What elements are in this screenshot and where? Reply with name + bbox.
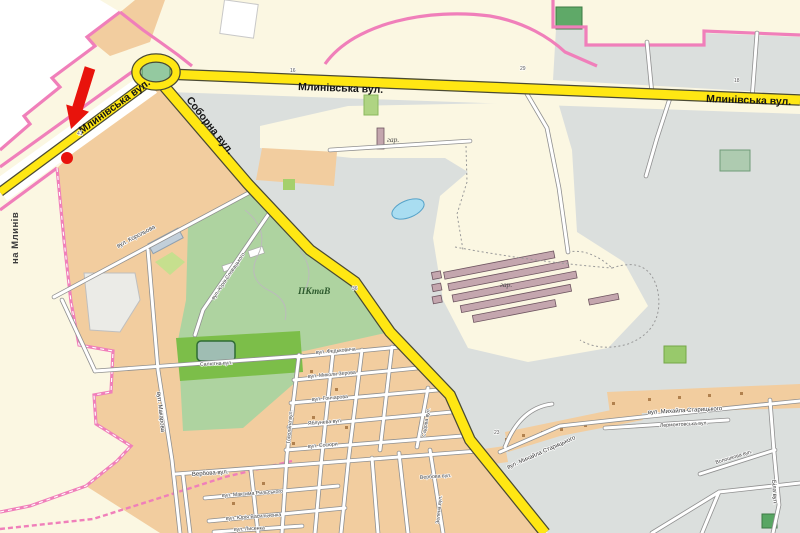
house-number: 16 [290, 68, 296, 74]
green-patch-north [364, 95, 378, 115]
garage-label-center: гар. [500, 280, 512, 289]
house-number: 41 [77, 131, 83, 137]
house-number: 23 [494, 430, 500, 436]
green-square-northeast [720, 150, 750, 171]
tan-block-northeast [256, 148, 337, 186]
house-number: 29 [520, 66, 526, 72]
house-number: 36 [352, 286, 358, 292]
green-patch-park-corner [283, 179, 295, 190]
park-label: ПКтаВ [297, 287, 330, 297]
green-square-east [664, 346, 686, 363]
garage-label-north: гар. [387, 135, 399, 144]
stadium [197, 341, 235, 361]
exit-label-mlyniv: на Млинів [10, 212, 21, 264]
map-canvas: Млинівська вул. Млинівська вул. Млинівсь… [0, 0, 800, 533]
city-map: Млинівська вул. Млинівська вул. Млинівсь… [0, 0, 800, 533]
house-number: 18 [734, 78, 740, 84]
building-block-top [220, 0, 258, 38]
red-dot-marker [61, 152, 73, 164]
